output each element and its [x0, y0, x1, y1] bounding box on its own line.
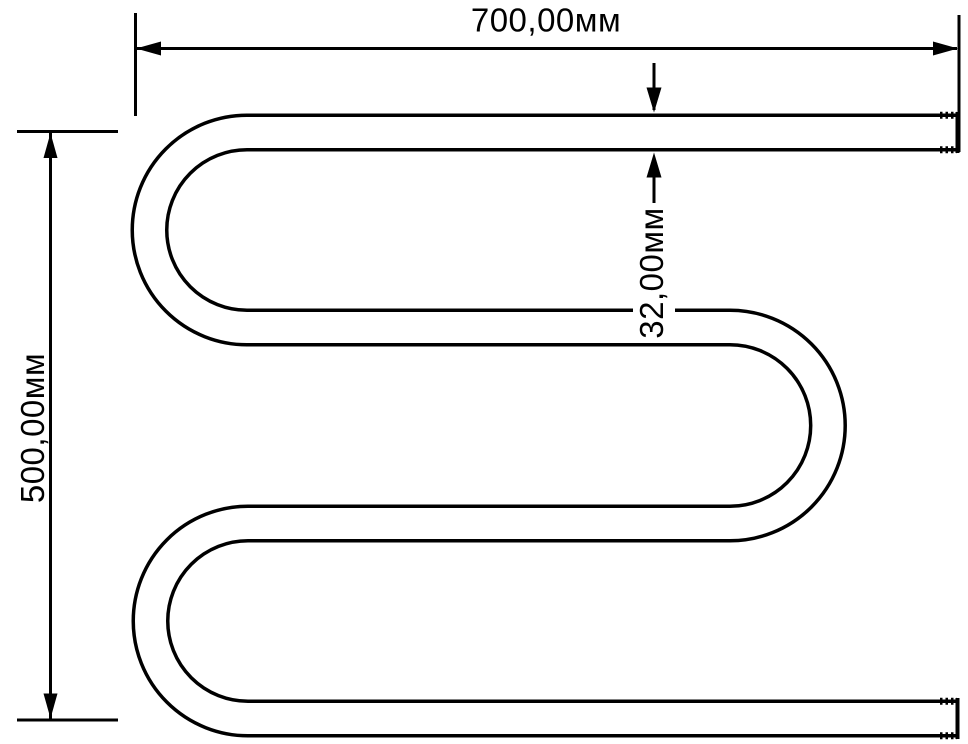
- pipe-inner-fill: [150, 133, 960, 719]
- width-dimension-label: 700,00мм: [471, 2, 621, 39]
- arrowhead-right-icon: [933, 42, 958, 56]
- arrowhead-left-icon: [136, 42, 161, 56]
- arrowhead-up-to-pipe-icon: [647, 153, 662, 178]
- diameter-dimension-label: 32,00мм: [633, 207, 670, 338]
- height-dimension-label: 500,00мм: [14, 353, 51, 503]
- arrowhead-up-icon: [44, 133, 58, 158]
- drawing-canvas: 700,00мм 500,00мм 32,00мм: [0, 0, 968, 744]
- pipe-outline: [150, 112, 960, 739]
- arrowhead-down-icon: [44, 694, 58, 719]
- arrowhead-down-to-pipe-icon: [647, 88, 662, 113]
- towel-rail-diagram: 700,00мм 500,00мм 32,00мм: [0, 0, 968, 744]
